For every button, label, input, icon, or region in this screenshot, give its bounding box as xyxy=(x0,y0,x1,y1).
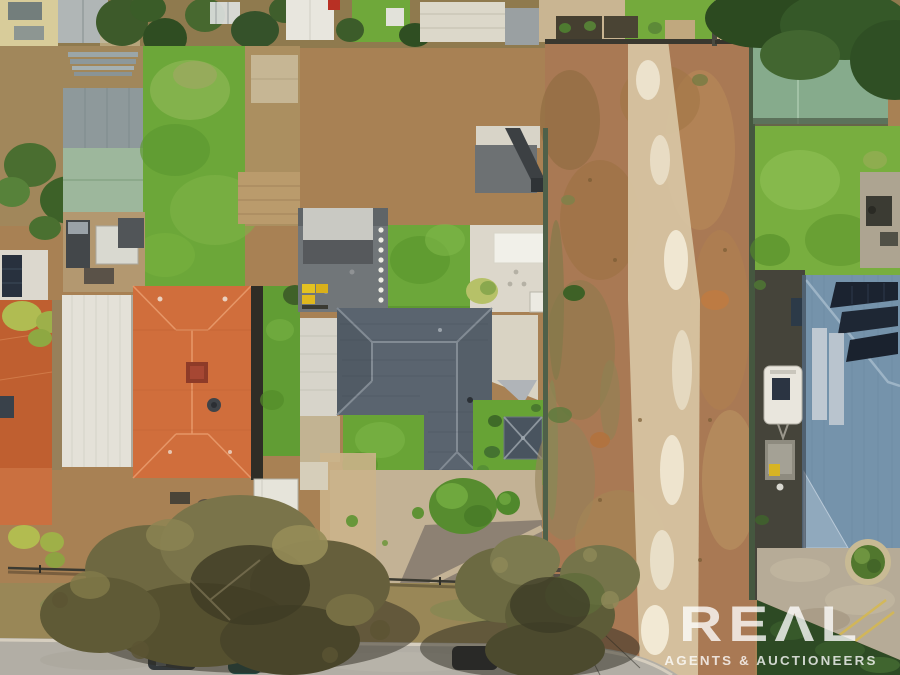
front-yard-tree xyxy=(429,478,497,534)
ac-unit xyxy=(791,298,802,326)
timber-deck xyxy=(238,172,300,224)
white-garage-roof xyxy=(62,295,133,467)
weed-clump xyxy=(563,285,585,301)
pale-panel-2 xyxy=(829,333,844,425)
pergola-roof xyxy=(494,233,545,263)
yellow-bin-2 xyxy=(302,295,315,304)
roof-window xyxy=(0,396,14,418)
garage-roof xyxy=(303,208,373,240)
left-boundary-fence xyxy=(543,128,548,598)
aerial-scene xyxy=(0,0,900,675)
yellow-bin-1 xyxy=(302,284,315,293)
white-shed-top xyxy=(420,2,505,42)
solar-panels-left xyxy=(2,255,22,297)
caravan-solar-panel xyxy=(772,378,790,400)
yellow-bin-3 xyxy=(316,284,328,293)
grey-roof-shed xyxy=(63,88,147,148)
side-shadow xyxy=(251,286,263,480)
pale-panel-1 xyxy=(812,328,827,420)
red-garden-item xyxy=(328,0,340,10)
aerial-photo: REΛL AGENTS & AUCTIONEERS xyxy=(0,0,900,675)
verandah-roof xyxy=(300,318,337,416)
